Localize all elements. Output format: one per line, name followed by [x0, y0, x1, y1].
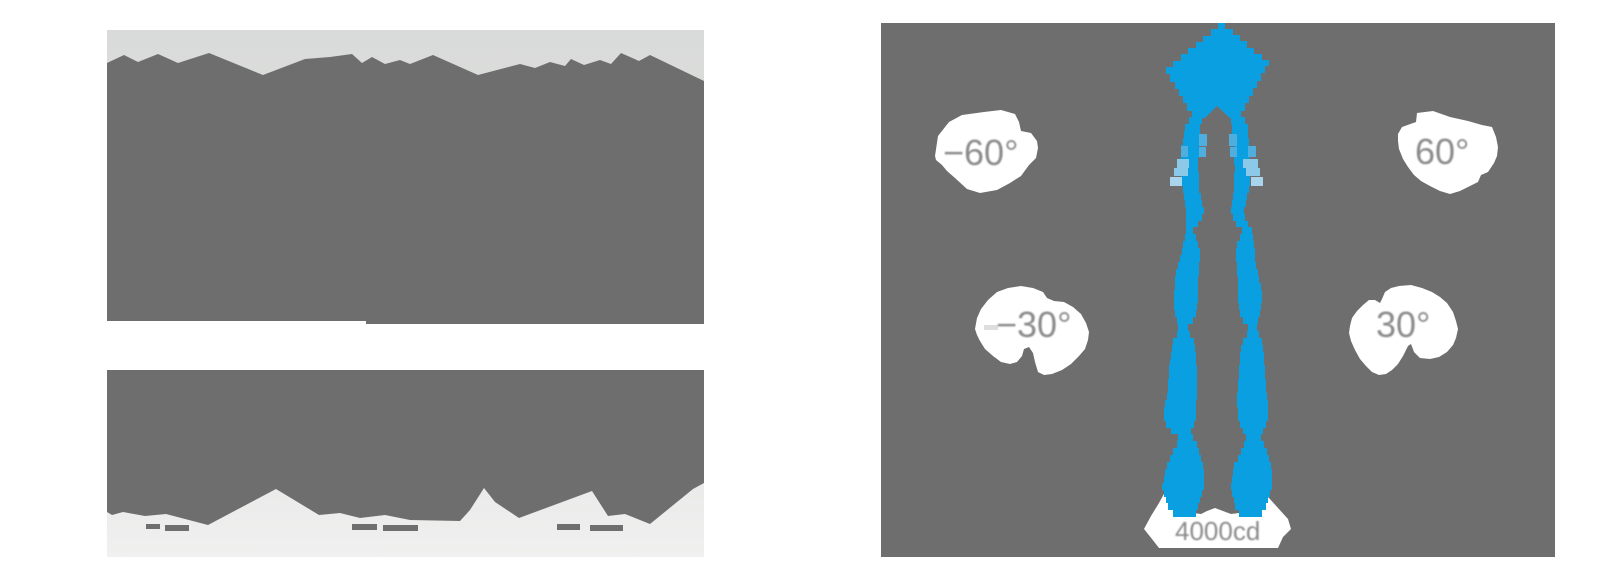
svg-text:60°: 60°: [1415, 131, 1469, 172]
svg-text:4000cd: 4000cd: [1175, 516, 1260, 546]
svg-text:−60°: −60°: [943, 132, 1018, 173]
svg-text:30°: 30°: [1376, 304, 1430, 345]
svg-text:−30°: −30°: [996, 304, 1071, 345]
